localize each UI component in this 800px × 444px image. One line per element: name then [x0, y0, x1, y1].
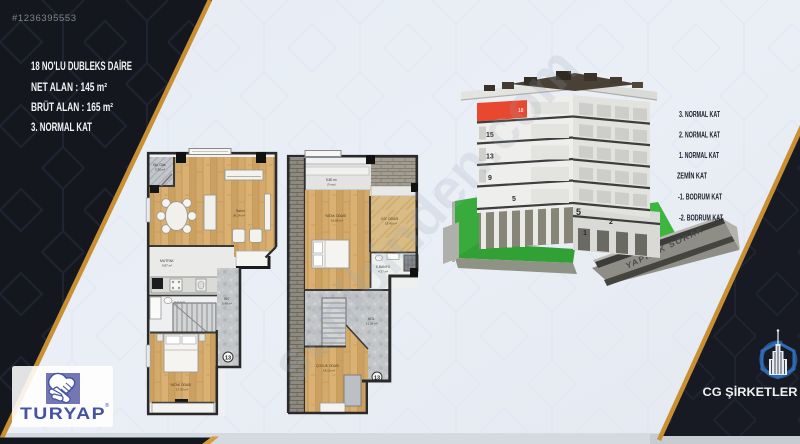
svg-text:5: 5: [576, 207, 581, 217]
svg-text:-2. BODRUM KAT: -2. BODRUM KAT: [679, 214, 723, 223]
svg-text:5.80 m²: 5.80 m²: [326, 178, 337, 182]
svg-text:5.98 m²: 5.98 m²: [222, 302, 232, 306]
svg-text:ZEMİN KAT: ZEMİN KAT: [677, 172, 707, 181]
svg-text:BRÜT ALAN : 165 m²: BRÜT ALAN : 165 m²: [31, 101, 113, 114]
svg-text:2: 2: [609, 219, 613, 226]
svg-text:MUTFAK: MUTFAK: [160, 259, 174, 263]
svg-text:WC: WC: [224, 297, 230, 301]
svg-text:®: ®: [105, 402, 109, 409]
svg-text:NET ALAN : 145 m²: NET ALAN : 145 m²: [31, 82, 107, 94]
svg-text:13: 13: [225, 356, 231, 362]
svg-text:1. NORMAL KAT: 1. NORMAL KAT: [679, 151, 719, 160]
svg-text:36.24 m²: 36.24 m²: [233, 214, 245, 218]
svg-text:YATAK ODASI: YATAK ODASI: [170, 383, 191, 387]
svg-text:#1236395553: #1236395553: [12, 13, 76, 24]
svg-text:3. NORMAL KAT: 3. NORMAL KAT: [31, 122, 92, 134]
svg-text:Salon: Salon: [236, 209, 245, 213]
svg-text:1: 1: [583, 230, 587, 237]
svg-text:5: 5: [512, 196, 516, 203]
svg-text:3. NORMAL KAT: 3. NORMAL KAT: [679, 110, 720, 119]
svg-text:YATAK ODASI: YATAK ODASI: [325, 214, 346, 218]
svg-text:CG ŞİRKETLER: CG ŞİRKETLER: [703, 384, 798, 399]
svg-text:17.30 m²: 17.30 m²: [176, 388, 188, 392]
svg-text:9.87 m²: 9.87 m²: [162, 264, 172, 268]
svg-text:Giy. Oda: Giy. Oda: [153, 163, 166, 167]
svg-text:2. NORMAL KAT: 2. NORMAL KAT: [679, 131, 720, 140]
svg-text:(Teras): (Teras): [327, 183, 336, 187]
svg-text:-1. BODRUM KAT: -1. BODRUM KAT: [678, 193, 722, 202]
svg-text:18 NO'LU DUBLEKS DAİRE: 18 NO'LU DUBLEKS DAİRE: [31, 60, 132, 73]
svg-text:TURYAP: TURYAP: [20, 405, 106, 423]
svg-text:16.85 m²: 16.85 m²: [331, 219, 343, 223]
svg-text:3.30 m²: 3.30 m²: [155, 168, 165, 172]
